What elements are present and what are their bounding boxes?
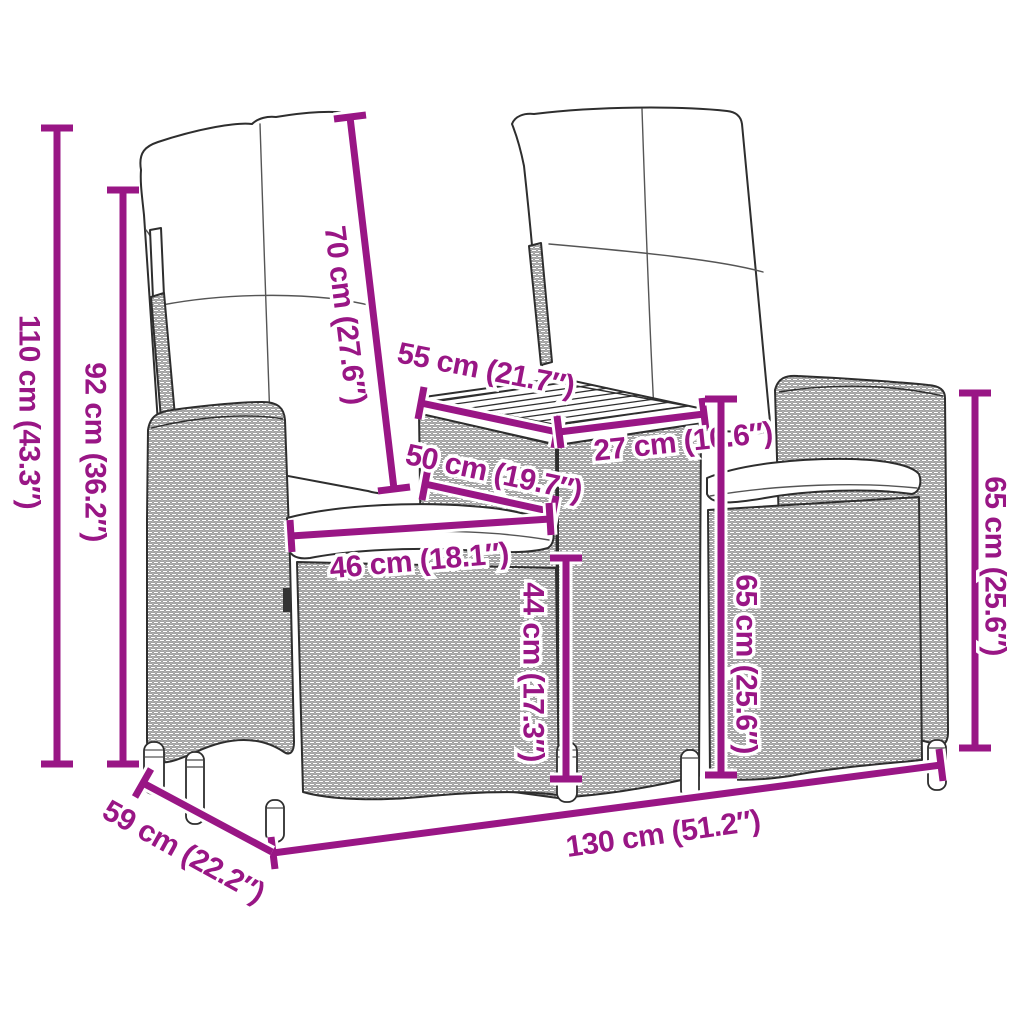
dimension-diagram-canvas: 110 cm (43.3″) 92 cm (36.2″) 70 cm (27.6… xyxy=(0,0,1024,1024)
product-dimension-diagram: 110 cm (43.3″) 92 cm (36.2″) 70 cm (27.6… xyxy=(0,0,1024,1024)
dimension-label-total-height: 110 cm (43.3″) xyxy=(13,315,46,509)
dimension-backrest-height: 92 cm (36.2″) xyxy=(79,190,140,764)
dimension-label-backrest-height: 92 cm (36.2″) xyxy=(79,362,112,542)
dimension-armrest-height: 65 cm (25.6″) xyxy=(959,393,1012,748)
dimension-label-table-height: 65 cm (25.6″) xyxy=(730,574,763,754)
left-armrest-panel xyxy=(147,402,294,762)
dimension-total-height: 110 cm (43.3″) xyxy=(13,128,74,764)
dimension-seat-height: 44 cm (17.3″) xyxy=(517,558,583,779)
dimension-total-depth: 59 cm (22.2″) xyxy=(97,769,272,910)
dimension-label-seat-height: 44 cm (17.3″) xyxy=(517,582,550,762)
recline-lever xyxy=(283,588,291,612)
dimension-label-armrest-height: 65 cm (25.6″) xyxy=(979,476,1012,656)
